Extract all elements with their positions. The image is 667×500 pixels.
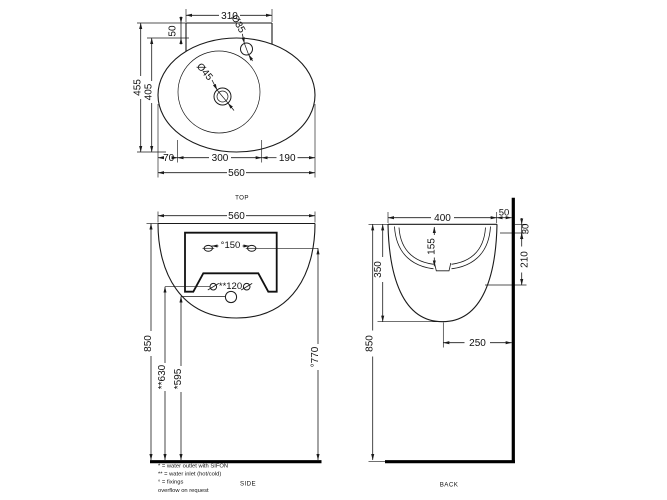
dim-560-side: 560 xyxy=(228,211,245,222)
dim-50-top: 50 xyxy=(168,25,179,37)
inner-bowl-back-2 xyxy=(399,228,486,265)
dim-30: 30 xyxy=(521,224,532,235)
dim-310: 310 xyxy=(221,11,238,22)
dim-70: 70 xyxy=(163,153,175,164)
footnote-fixings: ° = fixings xyxy=(158,480,183,486)
dim-455: 455 xyxy=(133,79,144,96)
dim-400: 400 xyxy=(434,213,451,224)
side-view: 560 °150 **120 850 **630 xyxy=(143,211,322,487)
dim-350: 350 xyxy=(373,261,384,278)
back-ledge-top xyxy=(186,23,272,52)
dim-diameter45: Ø45 xyxy=(194,61,215,83)
dim-210: 210 xyxy=(520,251,531,268)
technical-drawing-page: Ø45 Ø35 310 50 455 405 70 xyxy=(0,0,667,500)
dim-770: °770 xyxy=(310,346,321,367)
dim-560-top: 560 xyxy=(228,168,245,179)
dim-150: °150 xyxy=(221,240,241,251)
top-view-label: TOP xyxy=(235,195,249,202)
drain-leader xyxy=(212,80,217,90)
bowl-outline-back xyxy=(388,224,497,321)
top-view: Ø45 Ø35 310 50 455 405 70 xyxy=(133,9,315,202)
dim-405: 405 xyxy=(144,83,155,100)
dim-300: 300 xyxy=(212,153,229,164)
dim-595: *595 xyxy=(173,368,184,389)
back-view-label: BACK xyxy=(440,482,459,489)
footnote-inlet: ** = water inlet (hot/cold) xyxy=(158,472,221,478)
dim-250: 250 xyxy=(469,338,486,349)
dim-190: 190 xyxy=(279,153,296,164)
side-view-label: SIDE xyxy=(240,481,256,488)
footnotes: * = water outlet with SIFON ** = water i… xyxy=(158,464,228,495)
drain-leader-2 xyxy=(228,103,234,111)
dim-850-back: 850 xyxy=(365,335,376,352)
dim-50-back: 50 xyxy=(499,207,510,218)
dim-120: **120 xyxy=(219,281,242,292)
back-view: 400 50 155 350 850 30 xyxy=(365,198,532,489)
faucet-leader-2 xyxy=(249,55,253,61)
dim-630: **630 xyxy=(157,364,168,389)
footnote-outlet: * = water outlet with SIFON xyxy=(158,464,228,470)
dim-850-side: 850 xyxy=(143,335,154,352)
dim-155: 155 xyxy=(426,238,437,255)
sink-technical-drawing: Ø45 Ø35 310 50 455 405 70 xyxy=(0,0,667,500)
footnote-overflow: overflow on request xyxy=(158,488,209,494)
outlet-hole xyxy=(225,291,236,302)
